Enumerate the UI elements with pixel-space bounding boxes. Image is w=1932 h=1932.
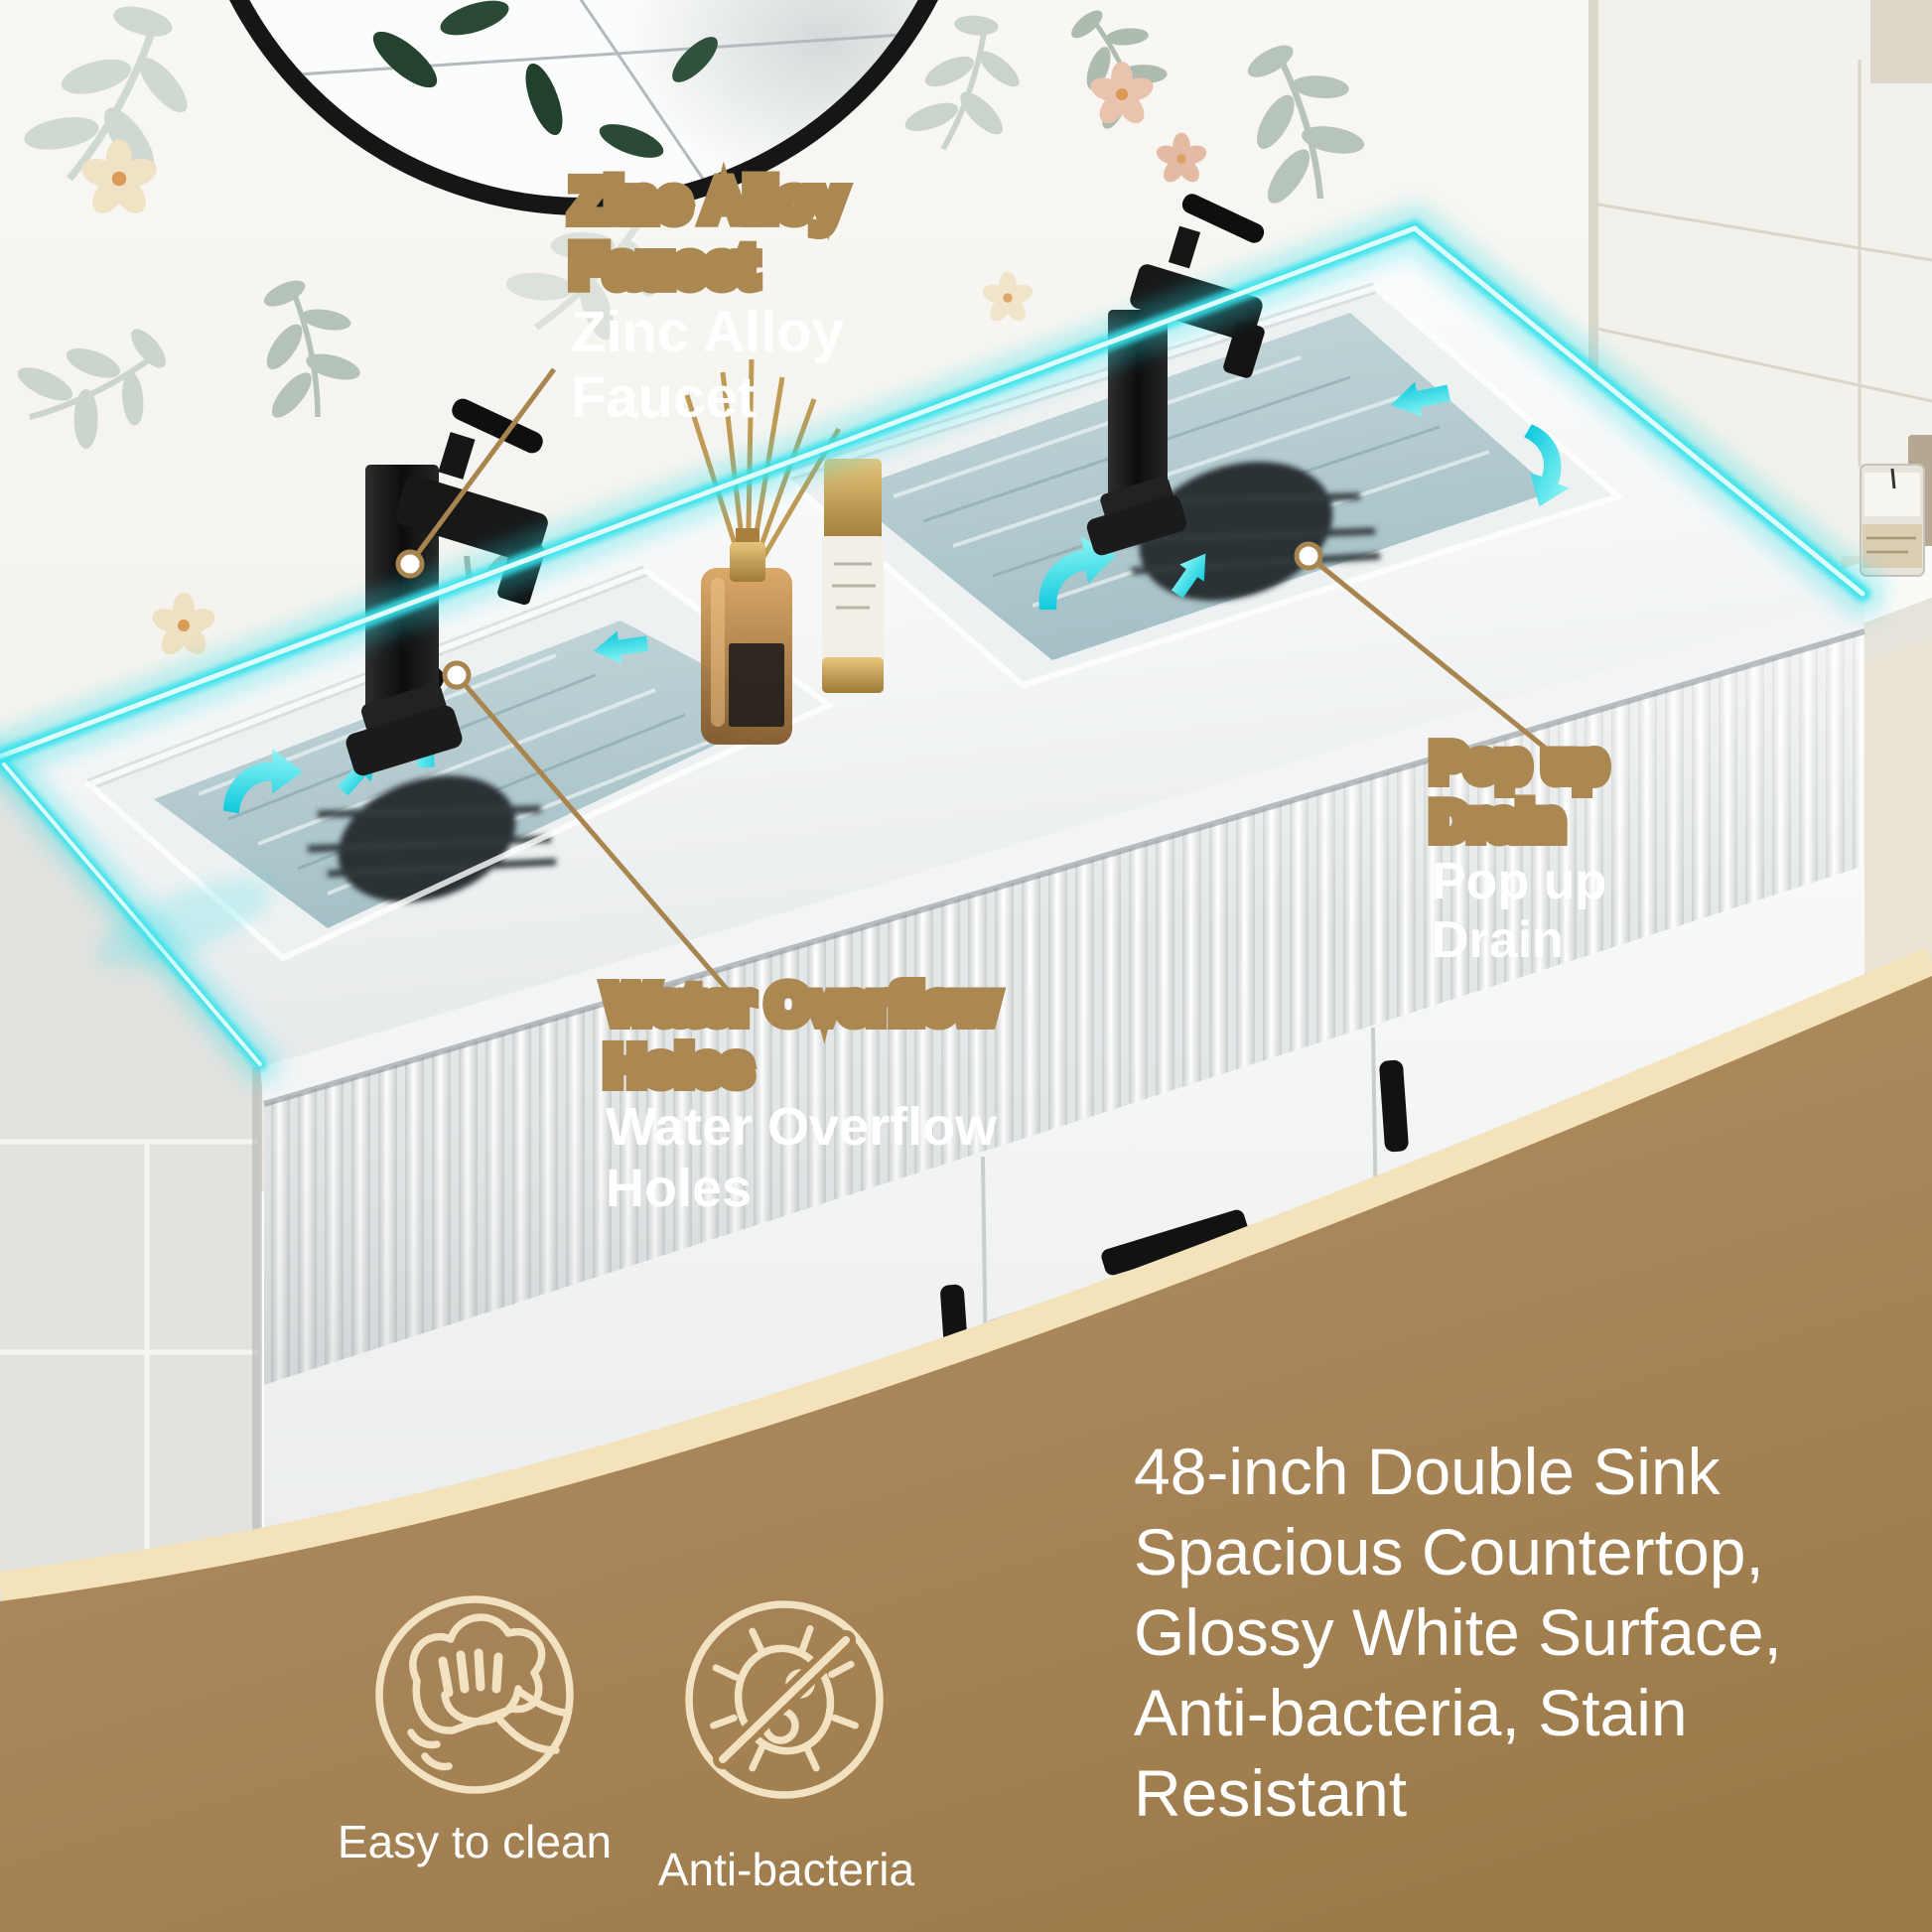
callout-water-overflow-holes-text: Water Overflow Holes bbox=[606, 1097, 997, 1219]
product-description: 48-inch Double Sink Spacious Countertop,… bbox=[1134, 1432, 1849, 1834]
callout-zinc-alloy-faucet: Zinc Alloy Faucet Zinc Alloy Faucet bbox=[571, 169, 844, 497]
overflow-marker-dot bbox=[445, 663, 469, 687]
feature-label-easy-to-clean: Easy to clean bbox=[316, 1815, 633, 1868]
callout-zinc-alloy-faucet-text: Zinc Alloy Faucet bbox=[571, 300, 844, 431]
drain-marker-dot bbox=[1297, 544, 1320, 568]
callout-water-overflow-holes: Water Overflow Holes Water Overflow Hole… bbox=[606, 975, 997, 1281]
zinc-marker-dot bbox=[398, 552, 422, 576]
feature-label-anti-bacteria: Anti-bacteria bbox=[635, 1843, 937, 1896]
product-image: Zinc Alloy Faucet Zinc Alloy Faucet Pop … bbox=[0, 0, 1932, 1932]
callout-pop-up-drain-text: Pop up Drain bbox=[1432, 853, 1606, 971]
callout-pop-up-drain: Pop up Drain Pop up Drain bbox=[1432, 735, 1606, 1029]
